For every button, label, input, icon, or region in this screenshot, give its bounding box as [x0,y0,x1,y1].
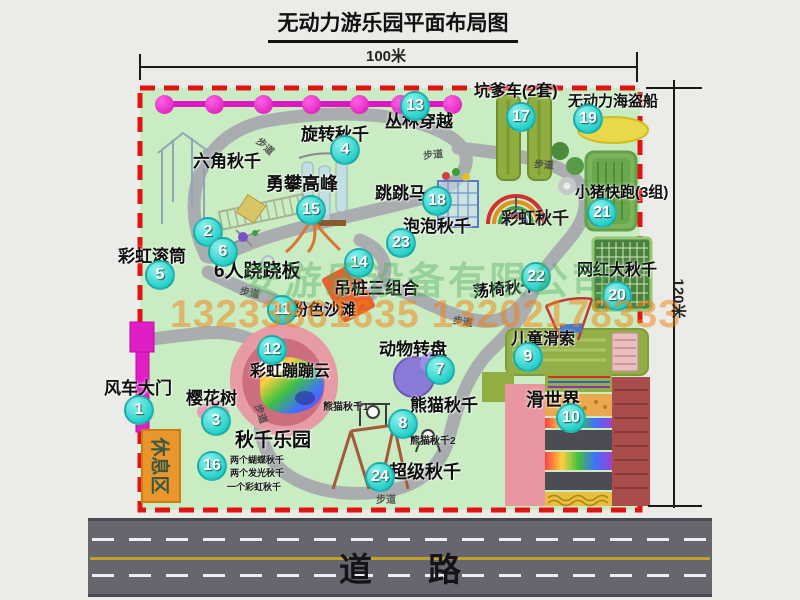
attraction-marker: 18 [422,186,452,216]
attraction-label: 小猪快跑(3组) [575,185,668,200]
width-dimension-label: 100米 [366,45,406,66]
attraction-label: 勇攀高峰 [266,175,338,193]
sub-label: 两个发光秋千 [230,469,284,478]
attraction-label: 熊猫秋千 [410,397,478,414]
attraction-marker: 1 [124,395,154,425]
sub-label: 熊猫秋千1 [323,403,369,413]
attraction-marker: 10 [556,403,586,433]
attraction-marker: 9 [513,342,543,372]
sub-label: 熊猫秋千2 [410,437,456,447]
zipline-ball [350,95,369,114]
attraction-label: 秋千乐园 [235,431,311,450]
zipline-ball [155,95,174,114]
attraction-marker: 4 [330,135,360,165]
sub-label: 一个彩虹秋千 [227,483,281,492]
attraction-marker: 15 [296,195,326,225]
path-sign: 步道 [376,491,396,506]
height-dimension-label: 120米 [669,278,690,318]
attraction-marker: 5 [145,260,175,290]
rest-area-label: 休息区 [148,437,175,494]
zipline-ball [443,95,462,114]
zipline-ball [254,95,273,114]
sub-label: 两个蝴蝶秋千 [230,456,284,465]
attraction-marker: 12 [257,335,287,365]
attraction-marker: 13 [400,91,430,121]
attraction-marker: 24 [365,462,395,492]
attraction-label: 超级秋千 [389,463,461,481]
attraction-label: 樱花树 [186,390,237,407]
zipline-ball [205,95,224,114]
phone-watermark: 13233861635 13202178333 [170,293,681,337]
park-layout-map: 无动力游乐园平面布局图 100米 120米 [0,0,800,600]
attraction-marker: 8 [388,409,418,439]
attraction-marker: 3 [201,406,231,436]
attraction-marker: 7 [425,355,455,385]
zipline-ball [302,95,321,114]
page-title: 无动力游乐园平面布局图 [268,7,518,43]
attraction-marker: 16 [197,451,227,481]
sub-label: 彩虹秋千 [501,210,569,227]
attraction-label: 彩虹蹦蹦云 [250,364,330,380]
attraction-marker: 19 [573,104,603,134]
path-sign: 步道 [534,155,555,171]
attraction-marker: 21 [587,198,617,228]
attraction-marker: 6 [208,237,238,267]
attraction-marker: 17 [506,102,536,132]
attraction-label: 跳跳马 [375,185,426,202]
path-sign: 步道 [422,145,443,162]
attraction-label: 泡泡秋千 [403,218,471,235]
attraction-label: 坑爹车(2套) [474,84,558,100]
attraction-label: 六角秋千 [193,153,261,170]
